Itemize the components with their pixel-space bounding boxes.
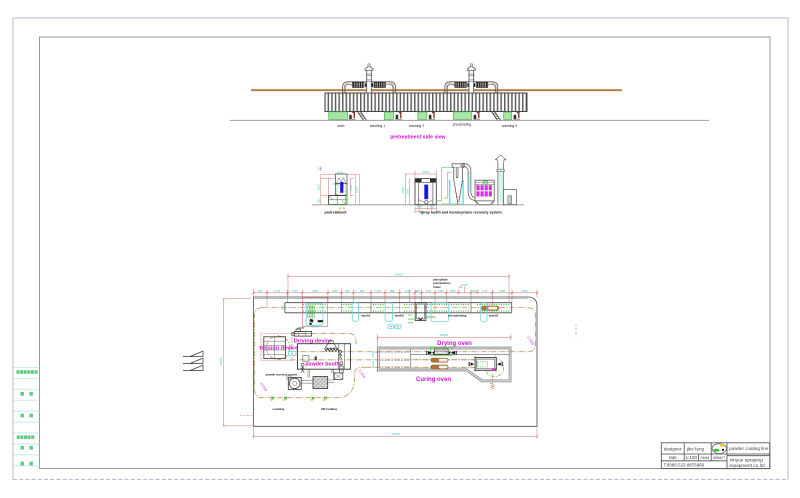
svg-text:1208: 1208: [522, 289, 528, 293]
svg-text:600: 600: [280, 305, 284, 310]
svg-text:1000: 1000: [371, 361, 375, 367]
svg-text:Off loading: Off loading: [321, 407, 337, 411]
svg-text:25000: 25000: [440, 333, 449, 337]
svg-text:1200: 1200: [438, 289, 444, 293]
svg-text:3000: 3000: [312, 289, 318, 293]
svg-text:300: 300: [317, 167, 322, 171]
svg-text:wash1: wash1: [360, 313, 371, 317]
svg-text:spray booth and monocyclone re: spray booth and monocyclone recovery sys…: [420, 211, 502, 215]
svg-text:06/M: 06/M: [700, 455, 709, 460]
svg-text:400: 400: [417, 205, 422, 209]
svg-text:xinyue spraying: xinyue spraying: [730, 457, 764, 463]
svg-text:3000: 3000: [422, 170, 429, 174]
svg-text:skim: skim: [338, 124, 345, 128]
svg-text:400: 400: [430, 205, 435, 209]
svg-text:tank: tank: [408, 320, 414, 324]
svg-text:1443: 1443: [375, 289, 381, 293]
svg-text:washing 3: washing 3: [502, 124, 517, 128]
svg-text:1500: 1500: [405, 189, 409, 195]
svg-text:tower: tower: [433, 285, 442, 289]
svg-text:pretreatment: pretreatment: [325, 211, 348, 215]
svg-text:rate: rate: [669, 455, 677, 460]
svg-text:3150: 3150: [316, 184, 320, 190]
svg-text:4500: 4500: [401, 187, 405, 193]
svg-text:Loading: Loading: [273, 407, 285, 411]
svg-text:1438: 1438: [405, 289, 411, 293]
svg-text:888: 888: [360, 289, 365, 293]
svg-text:1450: 1450: [332, 289, 338, 293]
svg-text:1000: 1000: [371, 351, 375, 357]
svg-text:equipment co.ltd: equipment co.ltd: [730, 463, 766, 469]
svg-text:tension device: tension device: [259, 345, 298, 351]
svg-text:phosphating: phosphating: [453, 123, 472, 127]
svg-text:4500: 4500: [450, 289, 456, 293]
svg-text:powder recovery system: powder recovery system: [266, 373, 298, 377]
svg-text:phosphating: phosphating: [448, 314, 466, 318]
svg-text:wash3: wash3: [488, 313, 499, 317]
svg-text:Drying oven: Drying oven: [437, 341, 472, 347]
svg-text:1700: 1700: [425, 289, 431, 293]
svg-text:hot: hot: [408, 313, 412, 317]
svg-text:2770: 2770: [274, 289, 280, 293]
svg-text:1:100: 1:100: [686, 455, 698, 460]
svg-text:washing 2: washing 2: [409, 124, 424, 128]
svg-text:powder booth: powder booth: [305, 361, 339, 367]
svg-text:1700: 1700: [292, 289, 298, 293]
svg-text:1771: 1771: [482, 289, 488, 293]
svg-text:3000: 3000: [311, 324, 318, 328]
svg-text:designer: designer: [664, 446, 682, 451]
svg-text:1254: 1254: [462, 283, 468, 287]
svg-text:Curing oven: Curing oven: [416, 377, 451, 383]
svg-text:450: 450: [258, 289, 263, 293]
svg-text:T:0086-523-8875966: T:0086-523-8875966: [664, 463, 705, 468]
svg-text:washing 1: washing 1: [370, 124, 385, 128]
svg-text:885827: 885827: [713, 456, 725, 460]
svg-text:3150: 3150: [354, 187, 358, 193]
svg-text:998: 998: [345, 289, 350, 293]
svg-text:888: 888: [390, 289, 395, 293]
svg-text:72000: 72000: [391, 432, 400, 436]
svg-text:1508: 1508: [471, 289, 477, 293]
svg-text:888: 888: [415, 289, 420, 293]
svg-text:650: 650: [316, 198, 320, 203]
svg-text:powder coating line: powder coating line: [729, 446, 768, 451]
svg-text:water: water: [408, 317, 415, 321]
svg-text:1500: 1500: [349, 185, 353, 191]
svg-text:2208: 2208: [499, 289, 505, 293]
svg-text:wash2: wash2: [394, 313, 405, 317]
svg-text:25400: 25400: [394, 273, 403, 277]
svg-text:15000: 15000: [219, 357, 223, 366]
svg-text:pretreatment side view: pretreatment side view: [390, 135, 445, 141]
svg-text:jike feng: jike feng: [686, 446, 705, 451]
